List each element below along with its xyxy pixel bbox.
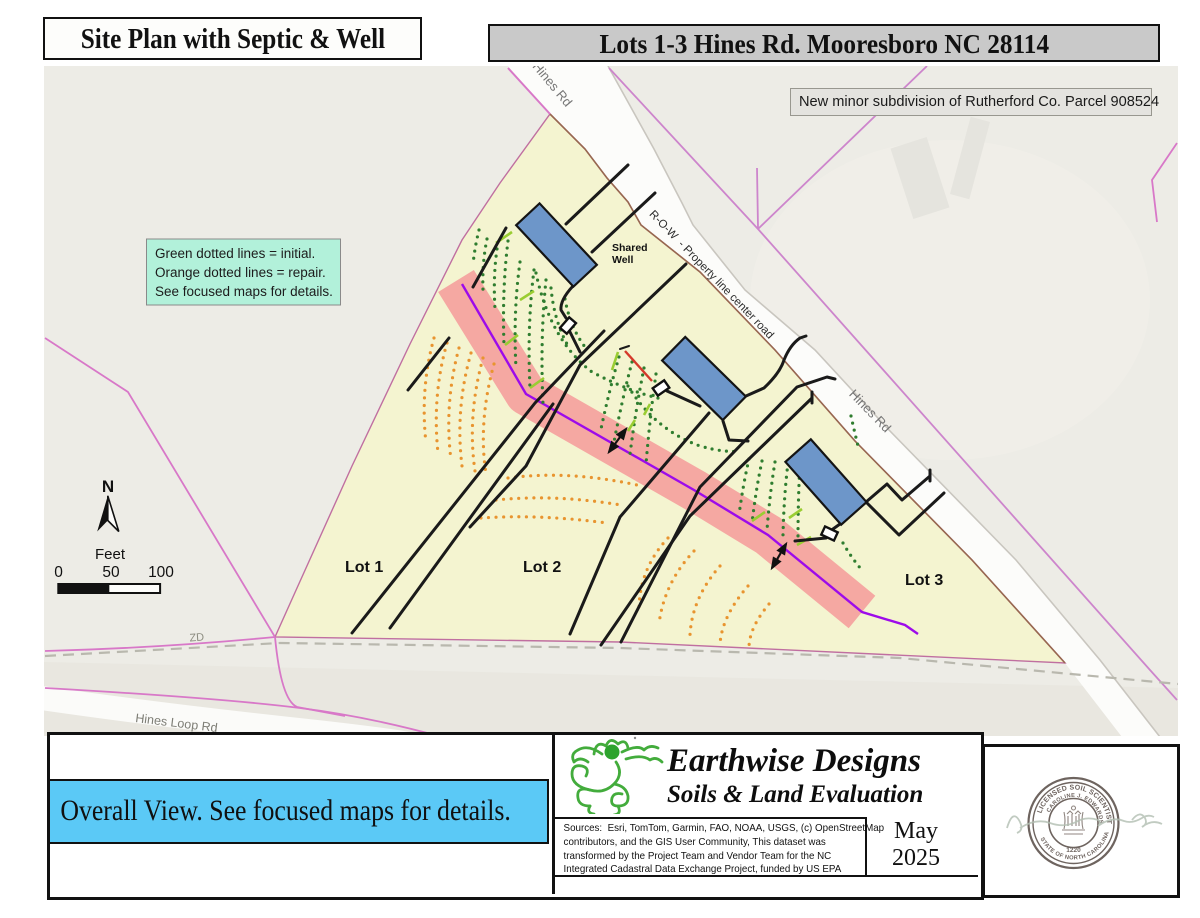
svg-text:Feet: Feet <box>95 546 126 563</box>
svg-text:1220: 1220 <box>1066 847 1081 854</box>
svg-text:Well: Well <box>612 254 633 266</box>
svg-text:See focused maps for details.: See focused maps for details. <box>155 284 333 299</box>
svg-text:Orange dotted lines = repair.: Orange dotted lines = repair. <box>155 265 326 280</box>
svg-text:Green dotted lines = initial.: Green dotted lines = initial. <box>155 246 315 261</box>
svg-text:100: 100 <box>148 564 174 581</box>
svg-text:N: N <box>102 477 114 496</box>
svg-text:ZD: ZD <box>189 632 205 645</box>
svg-text:STATE OF NORTH CAROLINA: STATE OF NORTH CAROLINA <box>1039 830 1111 861</box>
svg-text:50: 50 <box>102 564 120 581</box>
svg-text:Lot 2: Lot 2 <box>523 559 561 576</box>
svg-text:0: 0 <box>54 564 63 581</box>
svg-text:Shared: Shared <box>612 242 648 254</box>
svg-text:Lot 3: Lot 3 <box>905 572 943 589</box>
svg-text:Lot 1: Lot 1 <box>345 559 383 576</box>
